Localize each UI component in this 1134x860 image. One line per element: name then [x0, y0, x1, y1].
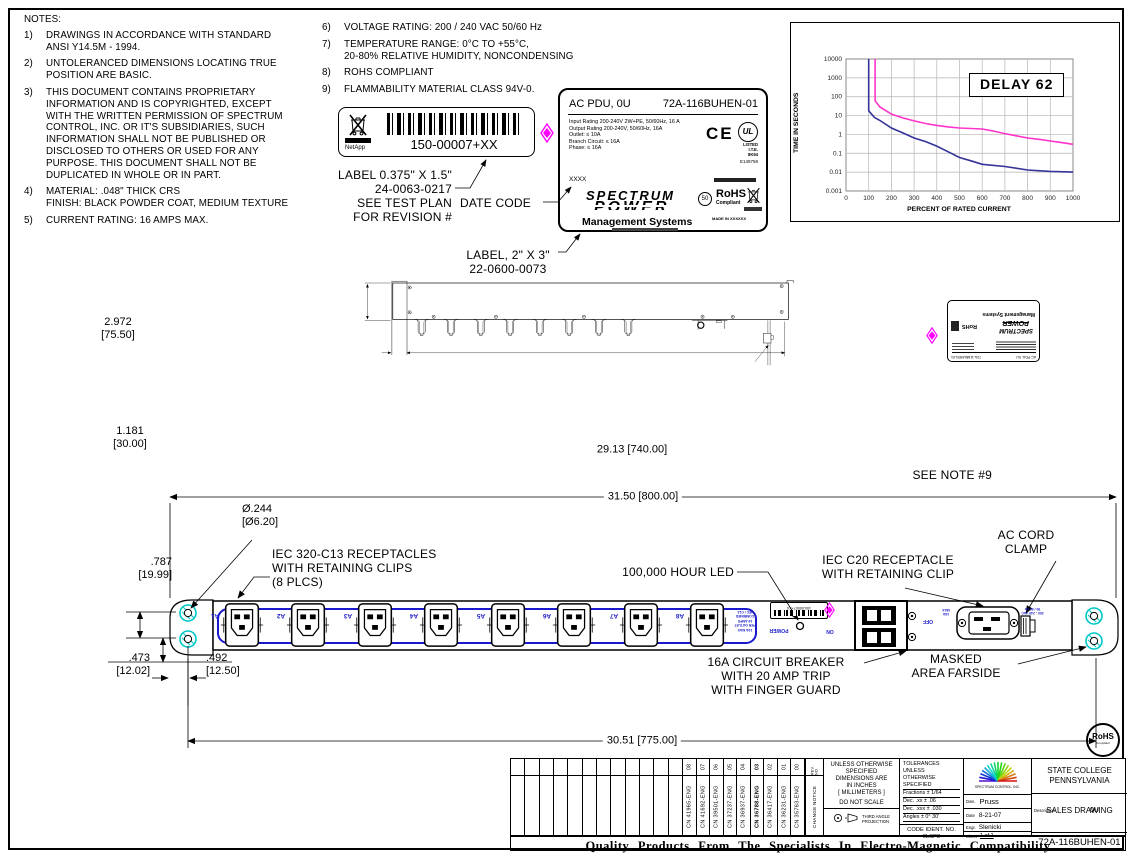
tolerance-line: TOLERANCES UNLESS [903, 761, 960, 775]
silk-inlet-left: 16A MAX [936, 607, 956, 616]
silk-off: OFF [915, 618, 941, 624]
revision-column: 07CN 41692-ENG [697, 759, 711, 837]
company-city: STATE COLLEGE PENNSYLVANIA [1032, 759, 1127, 794]
revision-column: 01CN 36231-ENG [778, 759, 792, 837]
svg-text:700: 700 [999, 195, 1010, 202]
rear-label-logo3: Management Systems [982, 311, 1035, 317]
projection-text: THIRD ANGLE PROJECTION [862, 815, 890, 824]
callout-masked: MASKED AREA FARSIDE [900, 652, 1012, 680]
dim-rear-height: 2.972 [75.50] [80, 316, 156, 342]
chart-title-box: DELAY 62 [969, 73, 1064, 97]
revision-empty-cell [669, 759, 683, 837]
rear-label-rule [952, 352, 1036, 353]
date-value: 8-21-07 [979, 812, 1001, 819]
inspection-diamond-icon [926, 327, 938, 349]
mini-barcode-label: 150-00007+XX [770, 602, 828, 619]
rohs-badge-line1: RoHS [1088, 732, 1118, 741]
svg-text:100: 100 [863, 195, 874, 202]
dwn-value: Pruss [980, 797, 999, 806]
rev-no-header: REV. NO. [806, 759, 823, 775]
do-not-scale-text: DO NOT SCALE [824, 800, 899, 809]
svg-text:1: 1 [838, 131, 842, 138]
svg-text:600: 600 [977, 195, 988, 202]
revision-column: 05CN 37237-ENG [724, 759, 738, 837]
receptacle-label-A7: A7 [608, 612, 620, 619]
revision-empty-cell [554, 759, 568, 837]
dim-rear-width: 29.13 [740.00] [593, 443, 671, 455]
dim-bottom-offset: .473 [12.02] [80, 652, 150, 678]
svg-text:10: 10 [835, 113, 843, 120]
revision-column: 02CN 36417-ENG [764, 759, 778, 837]
rohs-badge-line2: Compliant [1088, 741, 1118, 745]
callout-c20: IEC C20 RECEPTACLE WITH RETAINING CLIP [806, 553, 970, 581]
svg-text:0.1: 0.1 [833, 150, 842, 157]
callout-receptacles: IEC 320-C13 RECEPTACLES WITH RETAINING C… [272, 547, 482, 589]
chart-xlabel: PERCENT OF RATED CURRENT [859, 206, 1059, 213]
third-angle-projection-icon [833, 811, 859, 829]
chart-title: DELAY 62 [980, 76, 1053, 92]
revision-empty-cell [611, 759, 625, 837]
rear-label-blob3 [951, 321, 959, 331]
svg-text:900: 900 [1045, 195, 1056, 202]
trip-curve-chart: 0100200300400500600700800900100010000100… [790, 22, 1120, 222]
receptacle-label-A8: A8 [674, 612, 686, 619]
receptacle-label-A2: A2 [275, 612, 287, 619]
tolerance-line: Dec. .xxx ± .030 [903, 806, 960, 814]
svg-text:400: 400 [931, 195, 942, 202]
silk-inlet-right: 200 - 240 VAC 50 / 60 Hz [1019, 606, 1046, 615]
svg-text:0: 0 [844, 195, 848, 202]
drawing-info-block: STATE COLLEGE PENNSYLVANIA Description 0… [1031, 759, 1127, 837]
svg-text:300: 300 [909, 195, 920, 202]
dwn-label: Dwn. [966, 799, 976, 804]
silk-on: ON [818, 628, 842, 634]
svg-text:500: 500 [954, 195, 965, 202]
callout-led: 100,000 HOUR LED [596, 565, 734, 579]
front-view-drawing [0, 490, 1134, 760]
rear-label-rohs: RoHS [962, 323, 977, 329]
company-block: SPECTRUM CONTROL, INC. Dwn.Pruss Date8-2… [963, 759, 1031, 837]
revision-table: 08CN 41965-ENG07CN 41692-ENG06CN 39501-E… [683, 759, 805, 837]
company-name: SPECTRUM CONTROL, INC. [964, 785, 1031, 789]
rear-label-logo2: POWER [1003, 319, 1029, 326]
description-value1: 0U [1090, 807, 1099, 814]
dim-hole-inset: .492 [12.50] [206, 652, 270, 678]
rear-label-part: 72A-116BUHEN-01 [951, 355, 981, 359]
tolerance-block: TOLERANCES UNLESSOTHERWISE SPECIFIEDFrac… [899, 759, 963, 837]
revision-empty-cell [568, 759, 582, 837]
receptacle-label-A5: A5 [475, 612, 487, 619]
engr-value: Slenicki [979, 824, 1001, 831]
date-label: Date [966, 813, 975, 818]
callout-breaker: 16A CIRCUIT BREAKER WITH 20 AMP TRIP WIT… [690, 655, 862, 697]
revision-column: 08CN 41965-ENG [683, 759, 697, 837]
change-notice-header: CHANGE NOTICE [806, 776, 823, 837]
revision-empty-cell [525, 759, 539, 837]
chart-plot: 0100200300400500600700800900100010000100… [791, 23, 1119, 221]
tolerance-line: Dec. .xx ± .06 [903, 798, 960, 806]
see-note-callout: SEE NOTE #9 [896, 468, 992, 482]
banner-text: Quality Products From The Specialists In… [585, 839, 1050, 853]
revision-empty-cell [511, 759, 525, 837]
dim-mounting-width: 30.51 [775.00] [603, 734, 681, 746]
rear-label-logo: SPECTRUM [999, 327, 1033, 333]
tolerance-line: Fractions ± 1/64 [903, 790, 960, 798]
engr-label: Engr. [966, 825, 976, 830]
drawing-sheet: NOTES: 1)DRAWINGS IN ACCORDANCE WITH STA… [0, 0, 1134, 860]
rear-label-title: AC PDU, 0U [1016, 355, 1036, 359]
receptacle-label-A3: A3 [342, 612, 354, 619]
revision-column: 03CN 36788-ENG [751, 759, 765, 837]
dimension-standard-block: UNLESS OTHERWISE SPECIFIED DIMENSIONS AR… [823, 759, 899, 837]
rear-chassis [392, 280, 793, 365]
title-block: 08CN 41965-ENG07CN 41692-ENG06CN 39501-E… [510, 758, 1126, 836]
rear-label-blob1 [996, 340, 1036, 350]
svg-text:100: 100 [831, 94, 842, 101]
dim-hole-dia: Ø.244 [Ø6.20] [242, 503, 312, 529]
silk-power: POWER [760, 627, 798, 633]
callout-clamp: AC CORD CLAMP [988, 528, 1064, 556]
receptacle-label-A4: A4 [408, 612, 420, 619]
inspection-diamond-icon [824, 602, 835, 623]
spectrum-control-logo [968, 759, 1028, 783]
chart-ylabel: TIME IN SECONDS [793, 63, 805, 183]
description-label: Description [1034, 808, 1055, 813]
receptacle-label-A6: A6 [541, 612, 553, 619]
revision-empty-columns [511, 759, 683, 837]
revision-empty-cell [540, 759, 554, 837]
rohs-badge: RoHS Compliant [1086, 723, 1120, 757]
rear-product-label: AC PDU, 0U 72A-116BUHEN-01 SPECTRUM POWE… [947, 300, 1040, 362]
revision-column: 04CN 36937-ENG [737, 759, 751, 837]
tolerance-line: Angles ± 0° 30' [903, 814, 960, 822]
silk-outlet-rating: 10A MAX PER OUTLET 16 AMPS COMBINED IEC … [729, 609, 761, 632]
keyhole-slots [414, 319, 636, 335]
revision-empty-cell [626, 759, 640, 837]
revision-column: 00CN 35763-ENG [791, 759, 805, 837]
banner: Quality Products From The Specialists In… [510, 836, 1126, 851]
unless-otherwise-text: UNLESS OTHERWISE SPECIFIED DIMENSIONS AR… [824, 762, 899, 797]
svg-text:800: 800 [1022, 195, 1033, 202]
rear-label-blob2 [952, 341, 974, 350]
svg-text:1000: 1000 [828, 75, 843, 82]
revision-empty-cell [654, 759, 668, 837]
svg-text:1000: 1000 [1066, 195, 1081, 202]
revision-column: 06CN 39501-ENG [710, 759, 724, 837]
dim-hole-spacing: .787 [19.99] [98, 556, 172, 582]
revision-empty-cell [583, 759, 597, 837]
tolerance-line: OTHERWISE SPECIFIED [903, 775, 960, 790]
revision-header-column: REV. NO. CHANGE NOTICE [805, 759, 823, 837]
mini-barcode-text: 150-00007+XX [771, 607, 827, 611]
dim-rear-offset: 1.181 [30.00] [96, 425, 164, 451]
dim-overall-width: 31.50 [800.00] [604, 490, 682, 502]
svg-text:0.01: 0.01 [829, 169, 842, 176]
revision-empty-cell [597, 759, 611, 837]
revision-empty-cell [640, 759, 654, 837]
svg-text:200: 200 [886, 195, 897, 202]
svg-text:0.001: 0.001 [826, 188, 843, 195]
receptacle-label-A1: A1 [209, 612, 221, 619]
svg-text:10000: 10000 [824, 56, 842, 63]
